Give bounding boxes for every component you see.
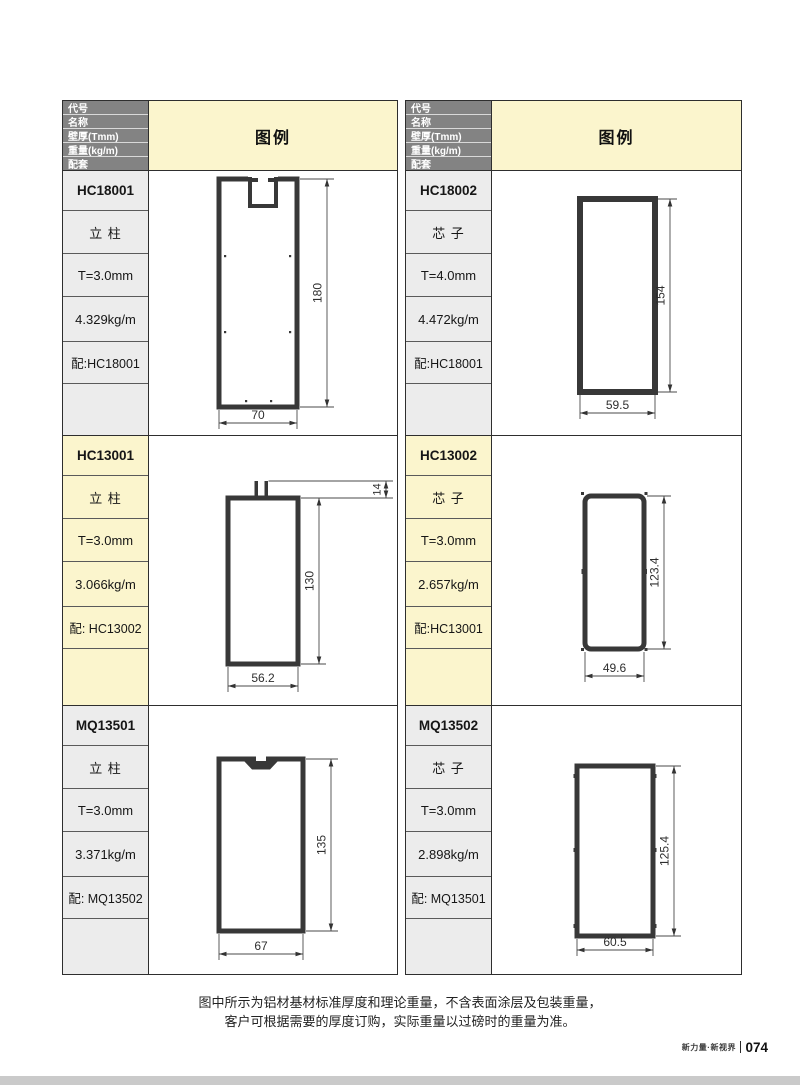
- spec-column: HC18001 立 柱 T=3.0mm 4.329kg/m 配:HC18001: [63, 171, 149, 435]
- brand-slogan: 新力量·新视界: [682, 1042, 736, 1053]
- spec-filler: [406, 649, 491, 705]
- header-label-thickness: 壁厚(Tmm): [63, 129, 148, 143]
- svg-text:59.5: 59.5: [606, 398, 630, 412]
- spec-weight: 2.898kg/m: [406, 832, 491, 877]
- header-label-match: 配套: [406, 157, 491, 170]
- spec-filler: [63, 384, 148, 435]
- spec-code: HC13001: [63, 436, 148, 476]
- spec-match: 配: HC13002: [63, 607, 148, 649]
- profile-diagram: 125.460.5: [492, 706, 741, 975]
- spec-name: 立 柱: [63, 211, 148, 254]
- profile-diagram: 13056.214: [149, 436, 397, 705]
- spec-code: MQ13501: [63, 706, 148, 746]
- profile-diagram: 15459.5: [492, 171, 741, 435]
- svg-text:125.4: 125.4: [658, 836, 672, 866]
- spec-name: 立 柱: [63, 476, 148, 519]
- spec-weight: 3.371kg/m: [63, 832, 148, 877]
- header-label-code: 代号: [406, 101, 491, 115]
- spec-filler: [63, 649, 148, 705]
- spec-name: 芯 子: [406, 211, 491, 254]
- footer-divider: [740, 1041, 742, 1053]
- catalog-page: 代号 名称 壁厚(Tmm) 重量(kg/m) 配套 图例 HC18001 立 柱…: [0, 0, 800, 1085]
- profile-diagram: 18070: [149, 171, 397, 435]
- spec-weight: 4.472kg/m: [406, 297, 491, 342]
- spec-column: MQ13501 立 柱 T=3.0mm 3.371kg/m 配: MQ13502: [63, 706, 149, 975]
- spec-match: 配:HC18001: [63, 342, 148, 384]
- svg-text:123.4: 123.4: [648, 557, 662, 587]
- svg-text:67: 67: [254, 939, 268, 953]
- profile-table-right: 代号 名称 壁厚(Tmm) 重量(kg/m) 配套 图例 HC18002 芯 子…: [405, 100, 742, 975]
- spec-column: HC18002 芯 子 T=4.0mm 4.472kg/m 配:HC18001: [406, 171, 492, 435]
- profile-diagram: 123.449.6: [492, 436, 741, 705]
- spec-column: HC13002 芯 子 T=3.0mm 2.657kg/m 配:HC13001: [406, 436, 492, 705]
- spec-code: HC18002: [406, 171, 491, 211]
- spec-name: 芯 子: [406, 746, 491, 789]
- header-label-column: 代号 名称 壁厚(Tmm) 重量(kg/m) 配套: [63, 101, 149, 170]
- spec-filler: [406, 919, 491, 975]
- spec-match: 配:HC13001: [406, 607, 491, 649]
- spec-name: 立 柱: [63, 746, 148, 789]
- spec-weight: 3.066kg/m: [63, 562, 148, 607]
- spec-thickness: T=3.0mm: [63, 789, 148, 832]
- legend-header: 图例: [149, 101, 397, 170]
- legend-header: 图例: [492, 101, 741, 170]
- profile-diagram: 13567: [149, 706, 397, 975]
- spec-weight: 4.329kg/m: [63, 297, 148, 342]
- product-row-mq13502: MQ13502 芯 子 T=3.0mm 2.898kg/m 配: MQ13501…: [406, 706, 741, 975]
- header-label-column: 代号 名称 壁厚(Tmm) 重量(kg/m) 配套: [406, 101, 492, 170]
- header-label-weight: 重量(kg/m): [406, 143, 491, 157]
- spec-weight: 2.657kg/m: [406, 562, 491, 607]
- header-label-weight: 重量(kg/m): [63, 143, 148, 157]
- svg-text:154: 154: [654, 285, 668, 305]
- spec-code: MQ13502: [406, 706, 491, 746]
- product-row-hc13001: HC13001 立 柱 T=3.0mm 3.066kg/m 配: HC13002…: [63, 436, 397, 706]
- svg-text:135: 135: [315, 835, 329, 855]
- header-label-thickness: 壁厚(Tmm): [406, 129, 491, 143]
- header-label-name: 名称: [406, 115, 491, 129]
- spec-thickness: T=4.0mm: [406, 254, 491, 297]
- bottom-edge-bar: [0, 1076, 800, 1085]
- spec-column: MQ13502 芯 子 T=3.0mm 2.898kg/m 配: MQ13501: [406, 706, 492, 975]
- svg-text:56.2: 56.2: [251, 671, 275, 685]
- footnote-line2: 客户可根据需要的厚度订购，实际重量以过磅时的重量为准。: [0, 1012, 800, 1031]
- product-row-mq13501: MQ13501 立 柱 T=3.0mm 3.371kg/m 配: MQ13502…: [63, 706, 397, 975]
- spec-thickness: T=3.0mm: [63, 254, 148, 297]
- product-row-hc18002: HC18002 芯 子 T=4.0mm 4.472kg/m 配:HC18001 …: [406, 171, 741, 436]
- footnote: 图中所示为铝材基材标准厚度和理论重量，不含表面涂层及包装重量， 客户可根据需要的…: [0, 993, 800, 1031]
- table-header: 代号 名称 壁厚(Tmm) 重量(kg/m) 配套 图例: [406, 101, 741, 171]
- header-label-code: 代号: [63, 101, 148, 115]
- svg-text:14: 14: [372, 483, 384, 495]
- page-footer: 新力量·新视界 074: [682, 1040, 768, 1054]
- spec-thickness: T=3.0mm: [406, 519, 491, 562]
- spec-filler: [63, 919, 148, 975]
- svg-text:49.6: 49.6: [603, 661, 627, 675]
- table-header: 代号 名称 壁厚(Tmm) 重量(kg/m) 配套 图例: [63, 101, 397, 171]
- svg-text:60.5: 60.5: [603, 935, 627, 949]
- svg-text:70: 70: [251, 408, 265, 422]
- spec-match: 配: MQ13502: [63, 877, 148, 919]
- spec-match: 配:HC18001: [406, 342, 491, 384]
- svg-text:130: 130: [303, 571, 317, 591]
- svg-text:180: 180: [311, 283, 325, 303]
- spec-code: HC13002: [406, 436, 491, 476]
- header-label-name: 名称: [63, 115, 148, 129]
- spec-name: 芯 子: [406, 476, 491, 519]
- spec-thickness: T=3.0mm: [406, 789, 491, 832]
- page-number: 074: [745, 1040, 768, 1055]
- product-row-hc18001: HC18001 立 柱 T=3.0mm 4.329kg/m 配:HC18001 …: [63, 171, 397, 436]
- spec-code: HC18001: [63, 171, 148, 211]
- profile-table-left: 代号 名称 壁厚(Tmm) 重量(kg/m) 配套 图例 HC18001 立 柱…: [62, 100, 398, 975]
- product-row-hc13002: HC13002 芯 子 T=3.0mm 2.657kg/m 配:HC13001 …: [406, 436, 741, 706]
- footnote-line1: 图中所示为铝材基材标准厚度和理论重量，不含表面涂层及包装重量，: [0, 993, 800, 1012]
- spec-filler: [406, 384, 491, 435]
- spec-column: HC13001 立 柱 T=3.0mm 3.066kg/m 配: HC13002: [63, 436, 149, 705]
- spec-thickness: T=3.0mm: [63, 519, 148, 562]
- header-label-match: 配套: [63, 157, 148, 170]
- spec-match: 配: MQ13501: [406, 877, 491, 919]
